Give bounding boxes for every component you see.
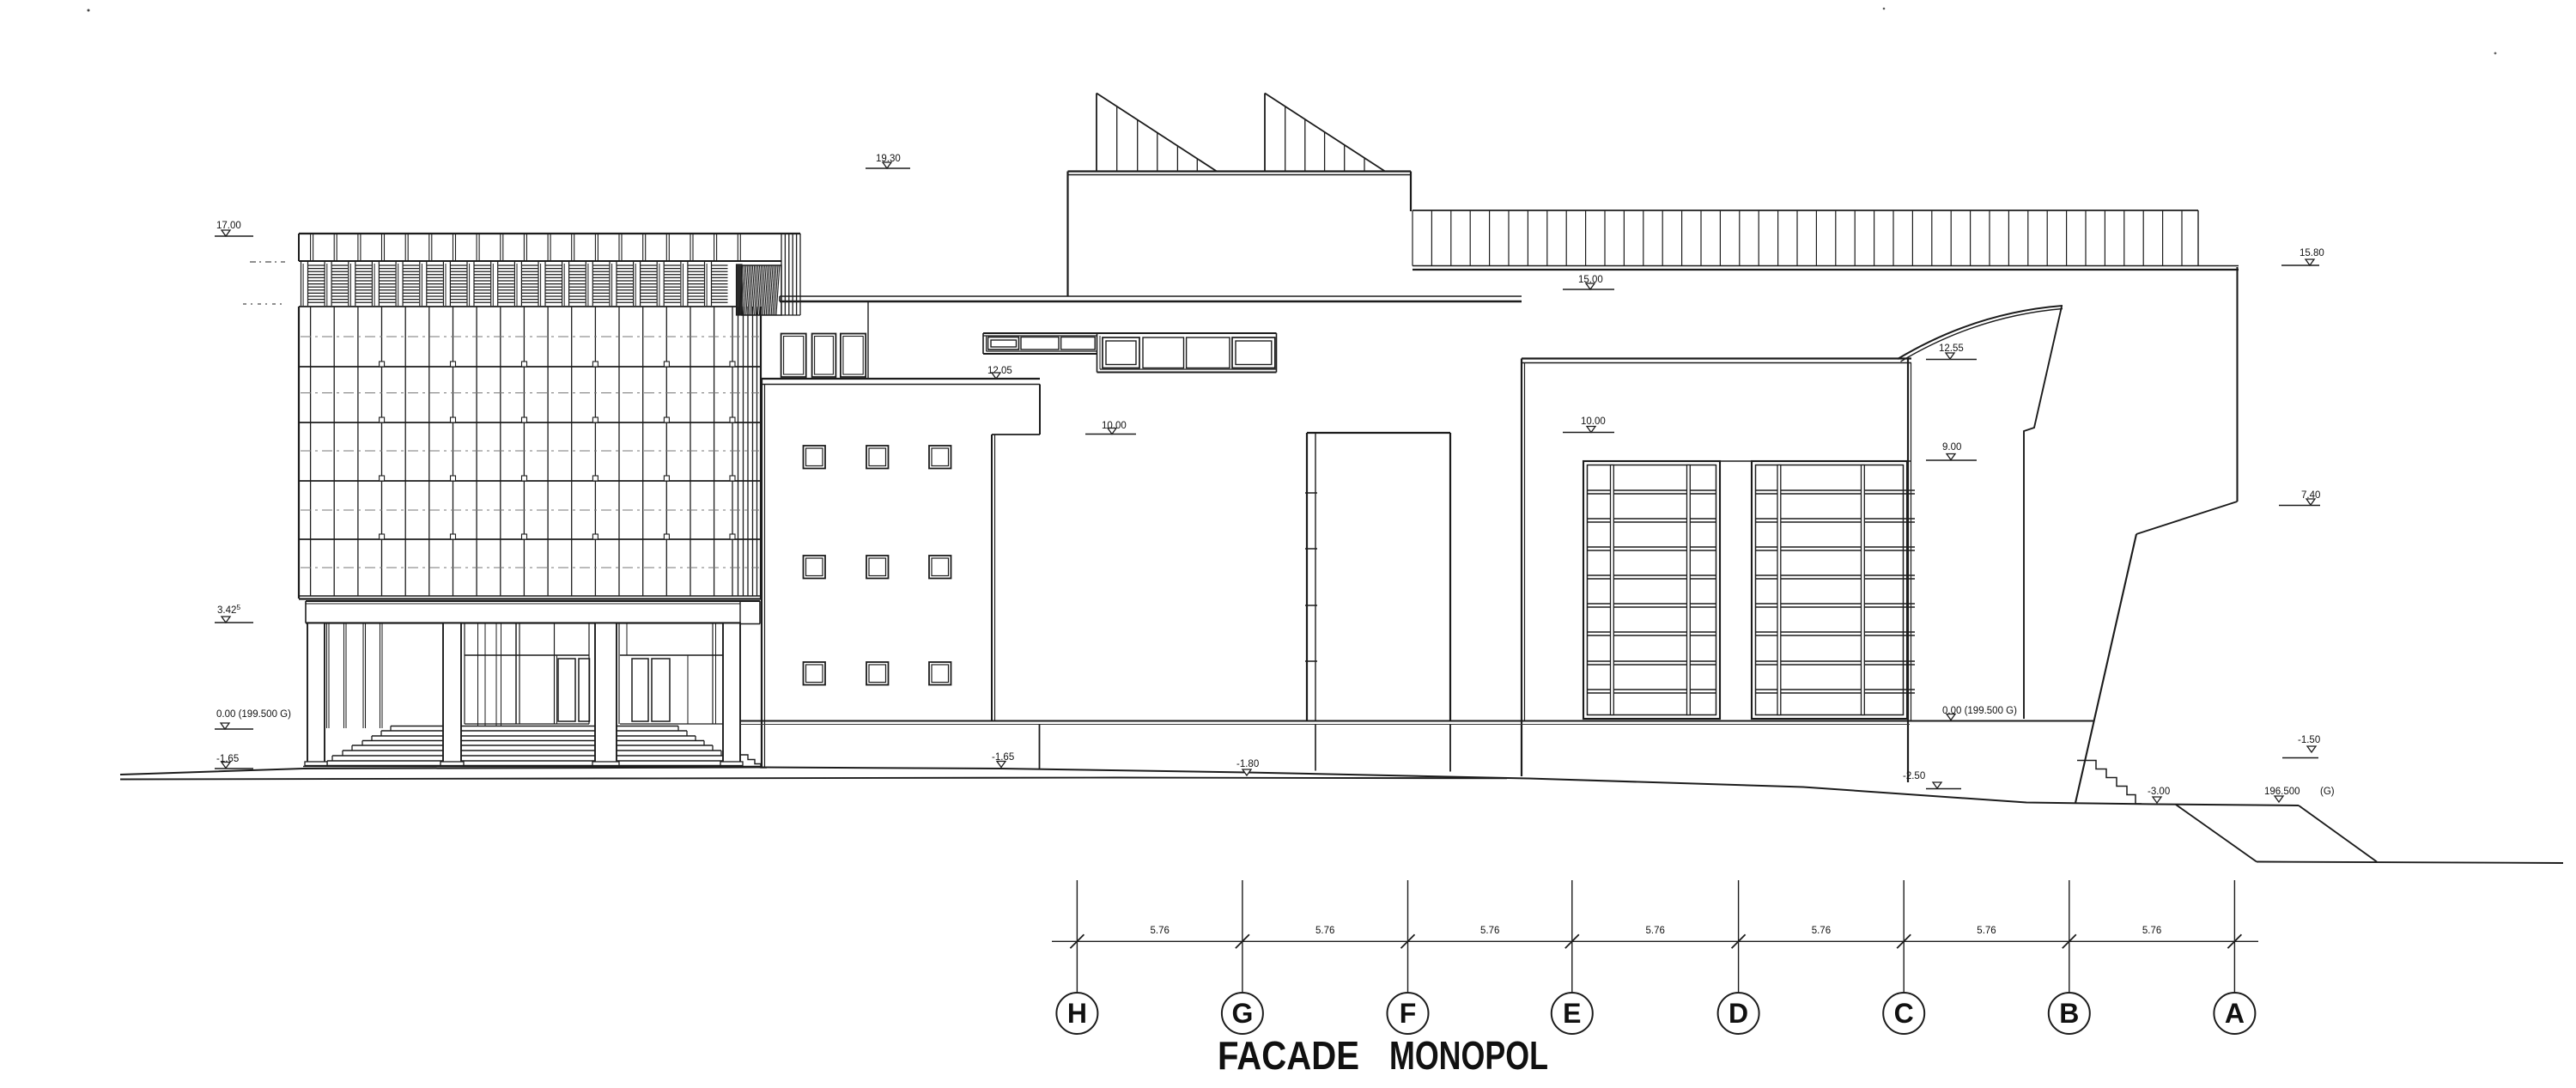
svg-text:5.76: 5.76 xyxy=(1646,926,1665,936)
svg-text:5.76: 5.76 xyxy=(1480,926,1499,936)
svg-text:B: B xyxy=(2059,998,2079,1029)
svg-text:196.500: 196.500 xyxy=(2264,787,2300,797)
svg-text:H: H xyxy=(1067,998,1087,1029)
svg-text:G: G xyxy=(1231,998,1253,1029)
svg-text:D: D xyxy=(1728,998,1748,1029)
svg-text:F: F xyxy=(1400,998,1417,1029)
svg-text:-1.50: -1.50 xyxy=(2298,735,2320,745)
svg-text:12.55: 12.55 xyxy=(1939,343,1964,354)
svg-text:5.76: 5.76 xyxy=(2142,926,2161,936)
svg-text:15.80: 15.80 xyxy=(2300,248,2324,258)
svg-text:(G): (G) xyxy=(2320,787,2335,797)
svg-text:17.00: 17.00 xyxy=(216,221,241,231)
svg-text:-2.50: -2.50 xyxy=(1903,771,1925,781)
svg-text:5.76: 5.76 xyxy=(1151,926,1170,936)
svg-text:5.76: 5.76 xyxy=(1315,926,1334,936)
svg-text:9.00: 9.00 xyxy=(1942,442,1961,453)
svg-text:C: C xyxy=(1894,998,1914,1029)
svg-text:5.76: 5.76 xyxy=(1977,926,1996,936)
svg-text:MONOPOL: MONOPOL xyxy=(1389,1033,1548,1078)
svg-text:10.00: 10.00 xyxy=(1581,416,1606,427)
svg-text:-1.80: -1.80 xyxy=(1236,759,1259,769)
svg-text:5.76: 5.76 xyxy=(1812,926,1831,936)
svg-text:-3.00: -3.00 xyxy=(2148,787,2170,797)
svg-text:12.05: 12.05 xyxy=(987,366,1012,376)
svg-text:E: E xyxy=(1563,998,1581,1029)
svg-text:A: A xyxy=(2225,998,2245,1029)
svg-text:FACADE: FACADE xyxy=(1218,1033,1359,1078)
svg-text:0.00 (199.500 G): 0.00 (199.500 G) xyxy=(216,709,291,720)
